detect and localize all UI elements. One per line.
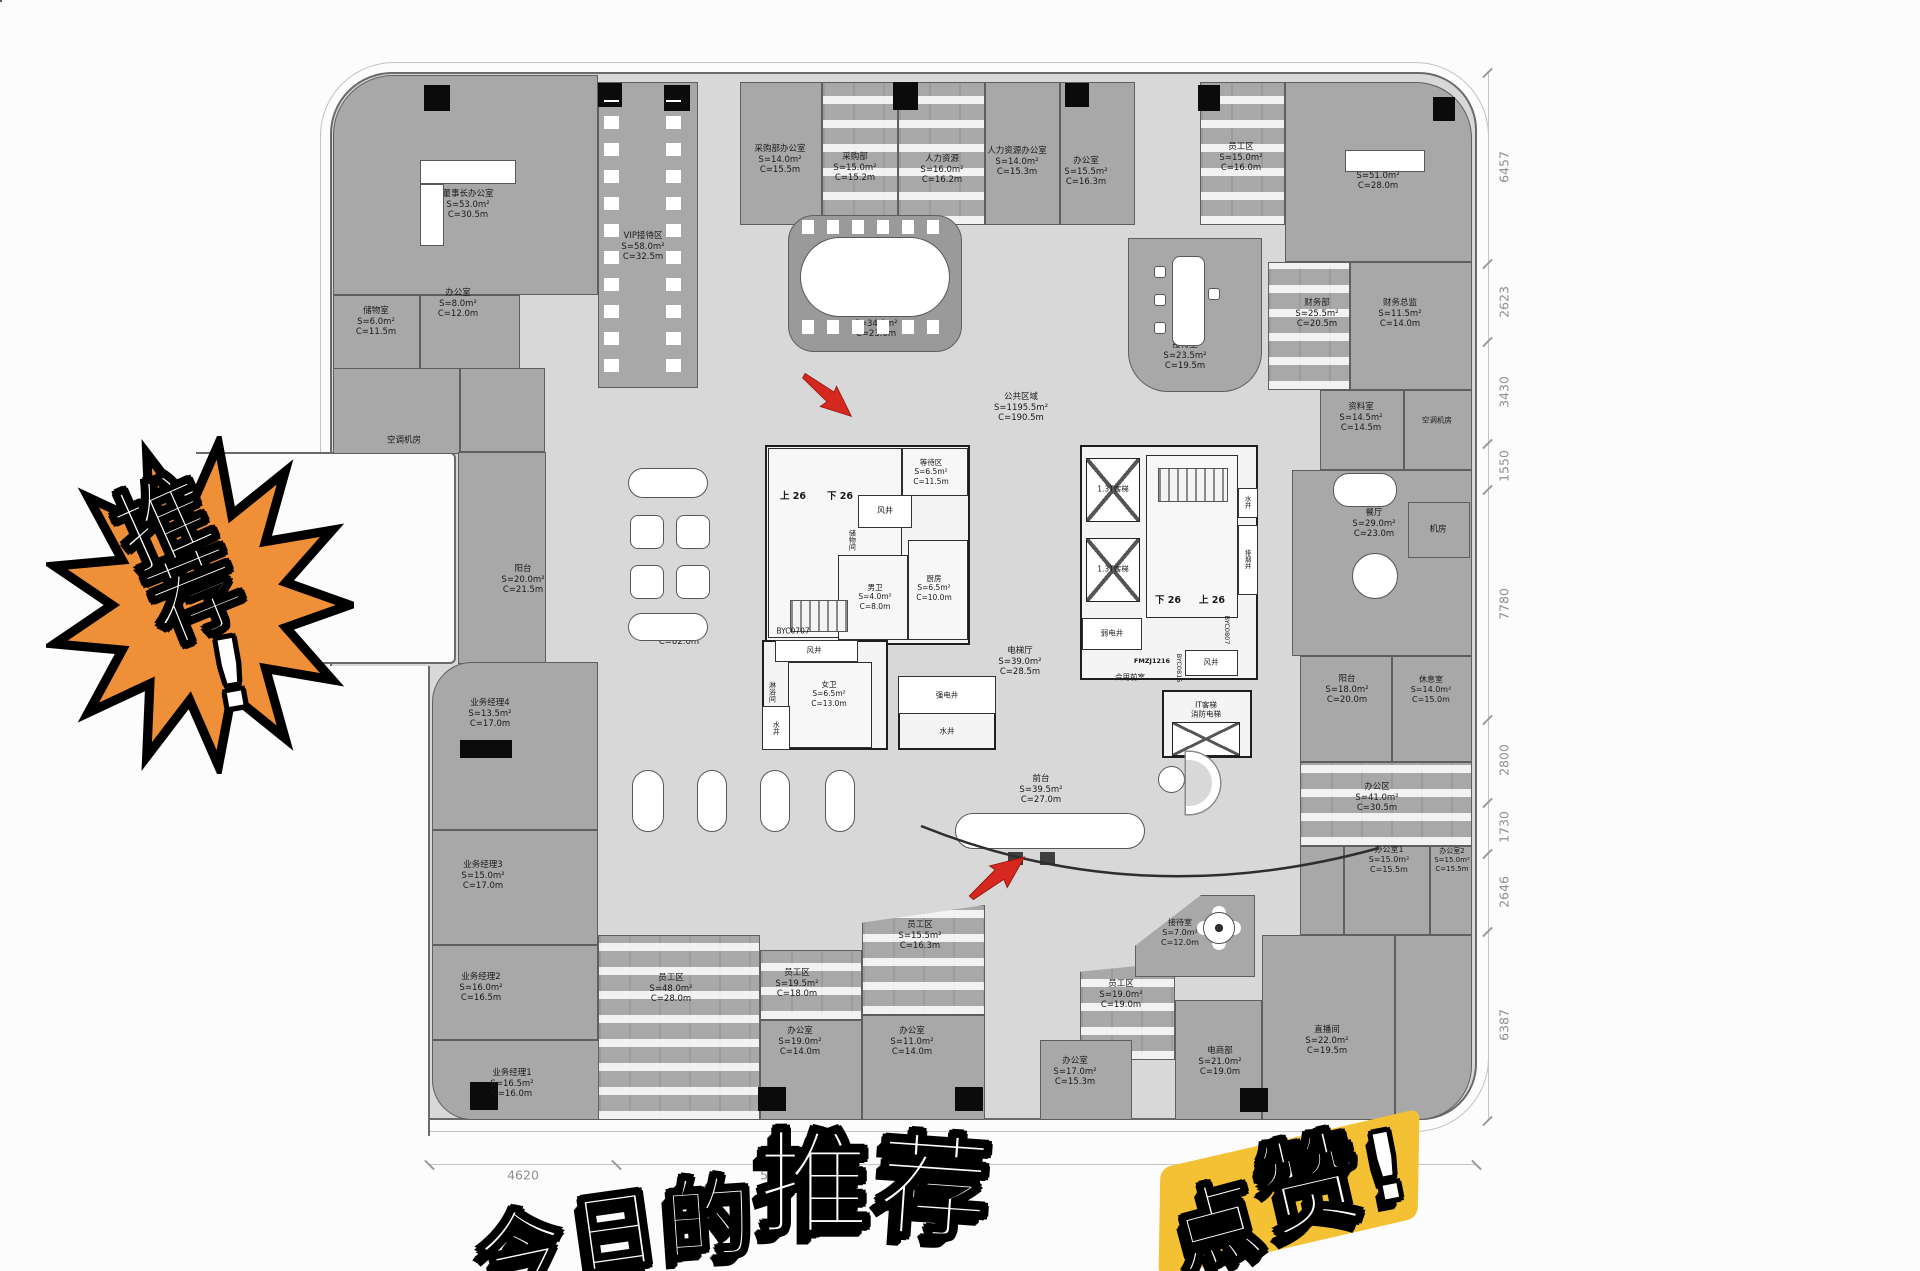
overlay-char: 日 bbox=[562, 1157, 665, 1271]
like-sticker: 点赞! bbox=[1128, 1104, 1448, 1271]
room-label: 电商部 S=21.0m² C=19.0m bbox=[1198, 1046, 1241, 1078]
room-label: 公共区域 S=1195.5m² C=190.5m bbox=[994, 392, 1048, 424]
room-label: 风井 bbox=[807, 645, 822, 654]
room-block bbox=[1300, 656, 1392, 762]
room-label: VIP接待区 S=58.0m² C=32.5m bbox=[621, 231, 664, 263]
room-block bbox=[432, 662, 598, 830]
dimension-value: 6457 bbox=[1497, 151, 1512, 183]
room-label: 办公室 S=15.5m² C=16.3m bbox=[1064, 156, 1107, 188]
room-block bbox=[1404, 390, 1472, 470]
room-label: 休息室 S=14.0m² C=15.0m bbox=[1411, 675, 1452, 705]
room-label: 淋浴间 bbox=[768, 682, 777, 703]
room-label: 采购部办公室 S=14.0m² C=15.5m bbox=[754, 144, 805, 176]
round-meeting-table bbox=[1203, 912, 1235, 944]
room-label: BYC0807 bbox=[1223, 616, 1231, 645]
column-marker bbox=[1065, 83, 1089, 107]
room-block bbox=[432, 830, 598, 945]
room-label: 风井 bbox=[877, 506, 893, 516]
conference-chairs-bottom bbox=[802, 320, 948, 334]
executive-desk bbox=[420, 160, 516, 184]
room-label: 财务部 S=25.5m² C=20.5m bbox=[1295, 298, 1338, 330]
room-label: 员工区 S=19.0m² C=19.0m bbox=[1099, 979, 1142, 1011]
room-label: 办公室 S=17.0m² C=15.3m bbox=[1053, 1056, 1096, 1088]
display-case bbox=[825, 770, 855, 832]
executive-desk bbox=[420, 184, 444, 246]
room-label: 等待区 S=6.5m² C=11.5m bbox=[913, 458, 949, 486]
vip-chairs-right bbox=[666, 100, 681, 372]
display-case bbox=[628, 613, 708, 641]
room-block bbox=[460, 368, 545, 452]
dimension-tick bbox=[424, 1160, 435, 1171]
room-label: 前台 S=39.5m² C=27.0m bbox=[1019, 774, 1062, 806]
chair bbox=[1154, 294, 1166, 306]
display-case bbox=[630, 565, 664, 599]
room-label: 男卫 S=4.0m² C=8.0m bbox=[858, 583, 891, 611]
room-label: 空调机房 bbox=[1422, 415, 1452, 424]
column-marker bbox=[1433, 97, 1455, 121]
dimension-value: 7780 bbox=[1497, 588, 1512, 620]
overlay-char: 荐 bbox=[873, 1095, 996, 1264]
room-label: 办公区 S=41.0m² C=30.5m bbox=[1355, 782, 1398, 814]
display-case bbox=[630, 515, 664, 549]
column-marker bbox=[893, 82, 918, 110]
room-label: 储物室 S=6.0m² C=11.5m bbox=[356, 306, 396, 338]
room-label: 风井 bbox=[1204, 657, 1219, 666]
room-label: 储物间 bbox=[848, 530, 857, 551]
room-label: 董事长办公室 S=53.0m² C=30.5m bbox=[442, 189, 493, 221]
stair-flight bbox=[1158, 468, 1228, 502]
dimension-value: 6387 bbox=[1497, 1009, 1512, 1041]
room-label: 1.3T客梯 bbox=[1097, 564, 1129, 573]
dimension-tick bbox=[1471, 1160, 1482, 1171]
room-label: 水井 bbox=[940, 726, 955, 735]
room-label: 强电井 bbox=[936, 690, 959, 699]
column-marker bbox=[460, 740, 512, 758]
room-label: 办公室 S=19.0m² C=14.0m bbox=[778, 1026, 821, 1058]
room-label: 合用前室 bbox=[1115, 672, 1145, 681]
overlay-char: 推 bbox=[758, 1095, 870, 1257]
room-label: 机房 bbox=[1429, 525, 1446, 536]
room-label: 上 26 bbox=[1199, 595, 1225, 607]
room-label: 业务经理4 S=13.5m² C=17.0m bbox=[468, 698, 511, 730]
dimension-value: 1550 bbox=[1497, 450, 1512, 482]
room-block bbox=[333, 75, 598, 295]
room-label: 员工区 S=19.5m² C=18.0m bbox=[775, 968, 818, 1000]
dimension-value: 3430 bbox=[1497, 376, 1512, 408]
display-case bbox=[676, 565, 710, 599]
dimension-line-right bbox=[1488, 72, 1489, 1120]
like-text: 点赞! bbox=[1124, 1077, 1452, 1271]
overlay-char: 今 bbox=[465, 1174, 575, 1271]
room-label: 财务总监 S=11.5m² C=14.0m bbox=[1378, 298, 1421, 330]
display-case bbox=[697, 770, 727, 832]
room-label: 阳台 S=18.0m² C=20.0m bbox=[1325, 674, 1368, 706]
display-case bbox=[676, 515, 710, 549]
room-label: 水井 bbox=[772, 721, 781, 735]
room-label: 业务经理1 S=16.5m² C=16.0m bbox=[490, 1068, 533, 1100]
room-label: BYC0815 bbox=[1175, 654, 1183, 683]
room-label: 下 26 bbox=[827, 491, 853, 503]
conference-table bbox=[800, 237, 950, 317]
president-desk bbox=[1345, 150, 1425, 172]
room-label: 餐厅 S=29.0m² C=23.0m bbox=[1352, 508, 1395, 540]
column-marker bbox=[424, 85, 450, 111]
room-block bbox=[458, 452, 546, 664]
room-label: 业务经理3 S=15.0m² C=17.0m bbox=[461, 860, 504, 892]
chair bbox=[1154, 266, 1166, 278]
room-label: 业务经理2 S=16.0m² C=16.5m bbox=[459, 972, 502, 1004]
room-label: 资料室 S=14.5m² C=14.5m bbox=[1339, 402, 1382, 434]
president-desk bbox=[0, 0, 2, 2]
room-label: FMZJ1216 bbox=[1134, 657, 1170, 665]
room-block bbox=[1392, 656, 1472, 762]
room-label: 直播间 S=22.0m² C=19.5m bbox=[1305, 1025, 1348, 1057]
room-label: 电梯厅 S=39.0m² C=28.5m bbox=[998, 646, 1041, 678]
screenshot-root: 董事长办公室 S=53.0m² C=30.5m储物室 S=6.0m² C=11.… bbox=[0, 0, 1920, 1271]
room-label: 员工区 S=48.0m² C=28.0m bbox=[649, 973, 692, 1005]
dining-table bbox=[1333, 473, 1397, 507]
room-label: 下 26 bbox=[1155, 595, 1181, 607]
overlay-char: 的 bbox=[660, 1146, 757, 1271]
round-table bbox=[1352, 553, 1398, 599]
dimension-value: 2800 bbox=[1497, 744, 1512, 776]
column-marker bbox=[1198, 85, 1220, 111]
room-label: 弱电井 bbox=[1101, 628, 1124, 637]
display-case bbox=[632, 770, 664, 832]
room-label: 空调机房 bbox=[387, 436, 421, 447]
room-label: 阳台 S=20.0m² C=21.5m bbox=[501, 564, 544, 596]
display-case bbox=[760, 770, 790, 832]
room-label: 办公室 S=11.0m² C=14.0m bbox=[890, 1026, 933, 1058]
room-label: 1.3T客梯 bbox=[1097, 484, 1129, 493]
chair bbox=[1154, 322, 1166, 334]
room-label: 员工区 S=15.5m² C=16.3m bbox=[898, 920, 941, 952]
meeting-table bbox=[1172, 256, 1205, 346]
room-block bbox=[598, 935, 760, 1120]
room-label: 女卫 S=6.5m² C=13.0m bbox=[811, 680, 847, 708]
room-label: 人力资源 S=16.0m² C=16.2m bbox=[920, 154, 963, 186]
display-case bbox=[628, 468, 708, 498]
room-label: 厨房 S=6.5m² C=10.0m bbox=[916, 574, 952, 602]
vip-chairs-left bbox=[604, 100, 619, 372]
daily-recommend-title: 今日的推荐 bbox=[434, 1097, 1032, 1271]
room-label: 办公室 S=8.0m² C=12.0m bbox=[438, 288, 478, 320]
dimension-value: 2646 bbox=[1497, 876, 1512, 908]
room-label: 员工区 S=15.0m² C=16.0m bbox=[1219, 142, 1262, 174]
room-label: 人力资源办公室 S=14.0m² C=15.3m bbox=[987, 146, 1047, 178]
room-label: 水井 bbox=[1243, 496, 1251, 509]
room-label: 采购部 S=15.0m² C=15.2m bbox=[833, 152, 876, 184]
elevator-cell bbox=[1172, 722, 1240, 756]
overlay-char: ! bbox=[202, 627, 261, 723]
room-label: 上 26 bbox=[780, 491, 806, 503]
room-label: 排烟井 bbox=[1243, 549, 1251, 569]
dimension-value: 1730 bbox=[1497, 811, 1512, 843]
conference-chairs-top bbox=[802, 220, 948, 234]
room-label: 接待室 S=7.0m² C=12.0m bbox=[1161, 918, 1199, 948]
room-label: 办公室2 S=15.0m² C=15.5m bbox=[1434, 847, 1470, 873]
chair bbox=[1208, 288, 1220, 300]
dimension-value: 2623 bbox=[1497, 286, 1512, 318]
room-block bbox=[432, 945, 598, 1040]
room-label: BYC0707 bbox=[776, 626, 809, 635]
sofa-table bbox=[1158, 766, 1185, 793]
room-label: IT客梯 消防电梯 bbox=[1191, 701, 1221, 720]
recommend-badge: 推荐! bbox=[46, 436, 354, 774]
